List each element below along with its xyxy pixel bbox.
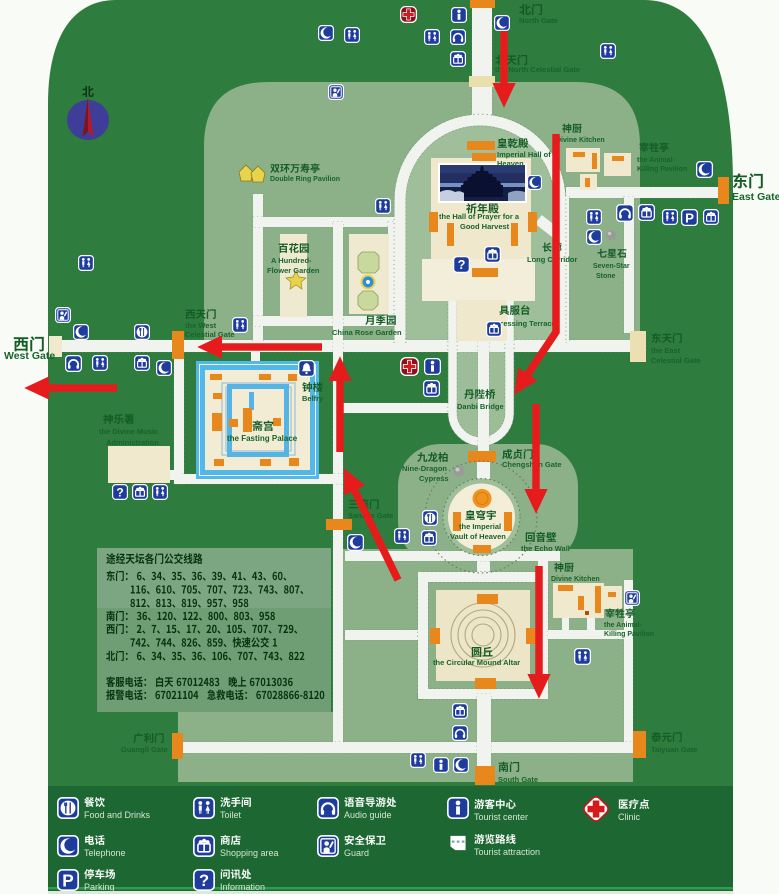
- svg-text:Seven-Star: Seven-Star: [593, 263, 630, 270]
- svg-text:Double Ring Pavilion: Double Ring Pavilion: [270, 176, 340, 183]
- svg-text:the Circular Mound Altar: the Circular Mound Altar: [433, 658, 520, 667]
- svg-text:Belfry: Belfry: [302, 394, 324, 403]
- svg-text:the Animal-: the Animal-: [604, 622, 643, 629]
- svg-text:Vault of Heaven: Vault of Heaven: [450, 532, 506, 541]
- svg-text:Shopping area: Shopping area: [220, 848, 279, 858]
- svg-text:the East: the East: [651, 346, 681, 355]
- svg-text:Clinic: Clinic: [618, 812, 641, 822]
- svg-text:Imperial Hall of: Imperial Hall of: [497, 150, 551, 159]
- svg-text:Tourist attraction: Tourist attraction: [474, 847, 540, 857]
- svg-text:Administration: Administration: [106, 438, 159, 447]
- svg-text:the Echo Wall: the Echo Wall: [521, 544, 570, 553]
- svg-text:the Hall of Prayer for a: the Hall of Prayer for a: [439, 212, 520, 221]
- svg-text:Good Harvest: Good Harvest: [460, 222, 510, 231]
- svg-text:the Imperial: the Imperial: [459, 522, 501, 531]
- svg-text:Telephone: Telephone: [84, 848, 126, 858]
- svg-text:Food and Drinks: Food and Drinks: [84, 810, 151, 820]
- svg-text:Killing Pavilion: Killing Pavilion: [604, 631, 654, 638]
- svg-text:Nine-Dragon: Nine-Dragon: [402, 464, 447, 473]
- svg-text:Celestial Gate: Celestial Gate: [185, 330, 235, 339]
- svg-text:Guangli Gate: Guangli Gate: [121, 745, 168, 754]
- svg-text:Heaven: Heaven: [497, 159, 524, 168]
- svg-text:Taiyuan Gate: Taiyuan Gate: [651, 745, 698, 754]
- svg-text:South Gate: South Gate: [498, 775, 538, 784]
- svg-text:the West: the West: [185, 321, 217, 330]
- svg-text:North Gate: North Gate: [519, 16, 558, 25]
- svg-text:Information: Information: [220, 882, 265, 892]
- svg-text:Flower Garden: Flower Garden: [267, 266, 320, 275]
- svg-text:Celestial Gate: Celestial Gate: [651, 356, 701, 365]
- svg-text:Tourist center: Tourist center: [474, 812, 528, 822]
- svg-text:the Divine Music: the Divine Music: [99, 427, 158, 436]
- svg-text:China Rose Garden: China Rose Garden: [332, 328, 402, 337]
- svg-text:East Gate: East Gate: [732, 191, 779, 203]
- svg-text:Divine Kitchen: Divine Kitchen: [551, 576, 600, 583]
- svg-text:Dressing Terrace: Dressing Terrace: [495, 319, 556, 328]
- svg-text:Audio guide: Audio guide: [344, 810, 392, 820]
- svg-text:Stone: Stone: [596, 273, 616, 280]
- svg-text:Divine Kitchen: Divine Kitchen: [556, 137, 605, 144]
- svg-text:Guard: Guard: [344, 848, 369, 858]
- svg-text:A Hundred-: A Hundred-: [271, 256, 312, 265]
- svg-text:Cypress: Cypress: [419, 474, 449, 483]
- svg-text:the Animal-: the Animal-: [637, 157, 676, 164]
- svg-text:Killing Pavilion: Killing Pavilion: [637, 166, 687, 173]
- svg-text:Danbi Bridge: Danbi Bridge: [457, 402, 504, 411]
- svg-text:the North Celestial Gate: the North Celestial Gate: [495, 65, 580, 74]
- svg-text:Long Corridor: Long Corridor: [527, 255, 577, 264]
- svg-text:Parking: Parking: [84, 882, 115, 892]
- svg-text:West Gate: West Gate: [4, 350, 55, 362]
- svg-text:the Fasting Palace: the Fasting Palace: [227, 434, 298, 443]
- svg-text:Chengshen Gate: Chengshen Gate: [502, 460, 562, 469]
- svg-text:Toilet: Toilet: [220, 810, 242, 820]
